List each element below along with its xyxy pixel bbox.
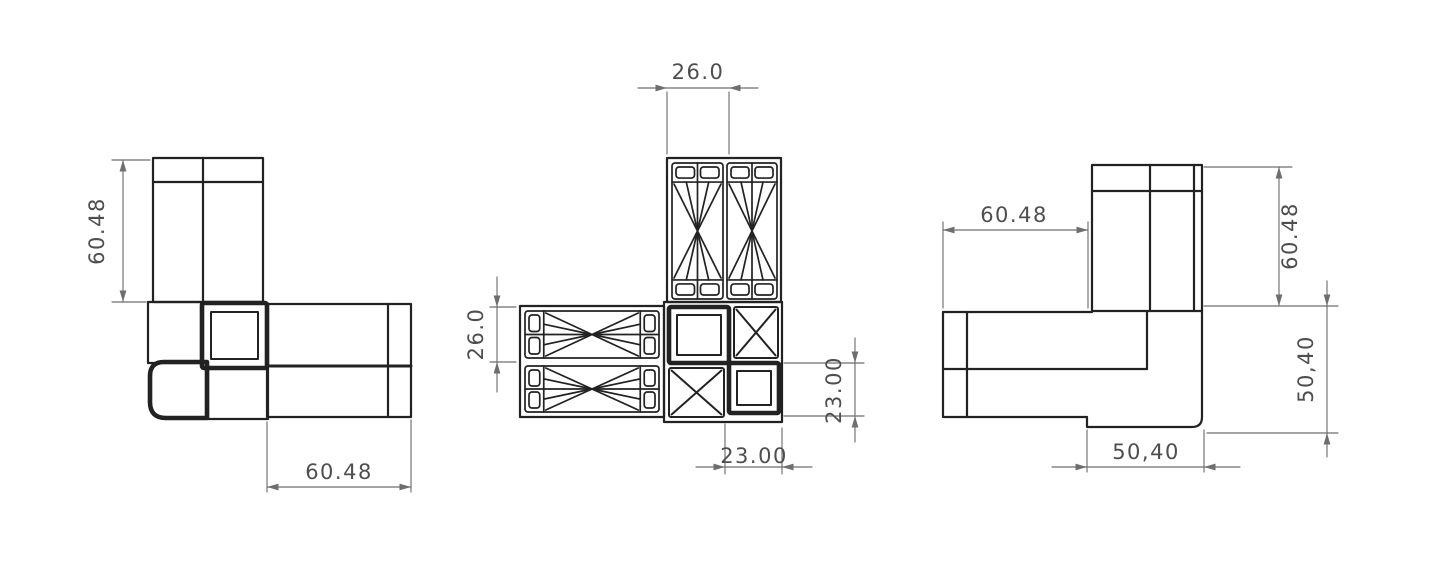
drawing-line [736,309,776,356]
drawing-line [741,182,752,231]
drawing-line [544,389,592,399]
dim-label-middle-bottom: 23.00 [720,444,788,468]
corner-connector-drawing: 60.48 60.48 26.0 [0,0,1442,574]
middle-rib-patterns [525,163,778,417]
drawing-line [686,182,697,231]
drawing-line [546,313,592,335]
dim-label-middle-top: 26.0 [672,60,725,84]
drawing-line [644,392,655,408]
drawing-line [752,231,763,280]
drawing-line [546,368,592,389]
dim-label-middle-left: 26.0 [464,308,488,361]
drawing-line [592,389,640,399]
drawing-line [592,335,640,345]
drawing-line [1324,295,1331,307]
drawing-line [592,335,638,357]
right-vertical-arm [1092,165,1202,311]
drawing-line [529,370,540,386]
drawing-line [592,368,638,389]
drawing-line [644,370,655,386]
drawing-line [494,362,501,374]
drawing-line [731,284,749,295]
drawing-line [731,167,749,178]
drawing-line [546,389,592,410]
drawing-line [656,85,668,92]
drawing-line [544,379,592,389]
left-part-outline [148,158,411,419]
middle-horizontal-arm [520,306,664,417]
drawing-line [1276,295,1283,307]
dim-label-right-lower: 50,40 [1294,335,1318,403]
technical-drawing-canvas: 60.48 60.48 26.0 [0,0,1442,574]
dim-label-right-upper: 60.48 [1278,202,1302,270]
view-middle-section: 26.0 26.0 23.00 23.00 [464,60,864,474]
drawing-line [755,167,773,178]
drawing-line [852,416,859,428]
drawing-line [592,324,640,334]
drawing-line [674,231,698,278]
drawing-line [546,335,592,357]
drawing-line [400,484,412,491]
dim-label-left-horizontal: 60.48 [305,460,373,484]
middle-socket-br-inner [737,371,771,405]
drawing-line [676,284,695,295]
drawing-line [729,231,752,278]
drawing-line [1204,464,1216,471]
drawing-line [729,85,741,92]
drawing-line [1324,433,1331,445]
dim-label-middle-right: 23.00 [822,356,846,424]
left-corner-square-br [208,368,268,419]
view-right-outline: 60.48 60.48 50,40 50,40 [943,165,1338,472]
dim-label-right-bottom: 50,40 [1112,440,1180,464]
left-rounded-socket [150,362,207,418]
drawing-line [644,338,655,355]
view-left-outline: 60.48 60.48 [85,158,411,492]
drawing-line [529,338,540,355]
left-dimensions: 60.48 60.48 [85,160,411,492]
drawing-line [755,284,773,295]
dim-label-left-vertical: 60.48 [85,197,109,265]
drawing-line [729,184,752,231]
drawing-line [852,352,859,364]
drawing-line [592,313,638,335]
drawing-line [494,296,501,308]
drawing-line [120,160,127,172]
left-socket-inner [211,312,258,359]
drawing-line [698,231,709,280]
drawing-line [120,291,127,303]
drawing-line [701,167,720,178]
drawing-line [686,231,697,280]
drawing-line [943,227,955,234]
drawing-line [698,182,709,231]
left-corner-square-tl [148,302,202,363]
drawing-line [1077,227,1089,234]
drawing-line [544,324,592,334]
left-vertical-arm [153,158,263,302]
middle-socket-tl-inner [677,315,721,355]
drawing-line [644,315,655,332]
drawing-line [698,231,722,278]
drawing-line [1276,167,1283,179]
drawing-line [671,370,722,415]
left-horizontal-arm [267,304,411,417]
drawing-line [529,392,540,408]
drawing-line [741,231,752,280]
drawing-line [592,389,638,410]
drawing-line [592,379,640,389]
dim-label-right-top: 60.48 [980,203,1048,227]
drawing-line [752,182,763,231]
drawing-line [267,484,279,491]
drawing-line [752,184,775,231]
drawing-line [701,284,720,295]
drawing-line [752,231,775,278]
drawing-line [529,315,540,332]
drawing-line [544,335,592,345]
drawing-line [674,184,698,231]
drawing-line [698,184,722,231]
drawing-line [1076,464,1088,471]
drawing-line [676,167,695,178]
